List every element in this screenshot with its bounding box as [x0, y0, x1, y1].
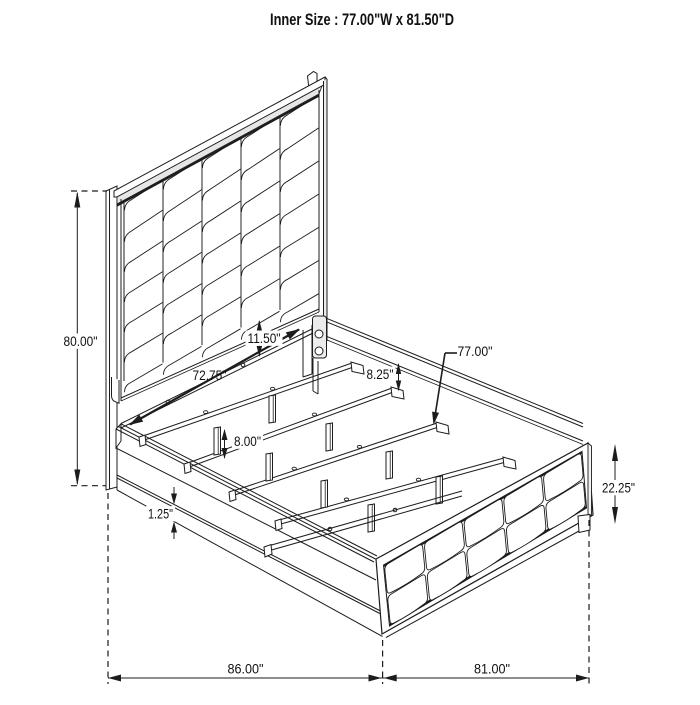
svg-text:8.25": 8.25" [367, 367, 394, 382]
svg-text:81.00": 81.00" [474, 662, 510, 677]
svg-text:22.25": 22.25" [602, 481, 635, 496]
svg-text:11.50": 11.50" [248, 331, 281, 346]
svg-text:86.00": 86.00" [228, 662, 264, 677]
svg-text:80.00": 80.00" [64, 334, 98, 349]
svg-text:Inner Size : 77.00"W x 81.50"D: Inner Size : 77.00"W x 81.50"D [270, 11, 454, 29]
svg-text:72.75": 72.75" [193, 368, 227, 383]
svg-text:1.25": 1.25" [148, 507, 173, 522]
svg-text:8.00": 8.00" [234, 434, 261, 449]
svg-text:77.00": 77.00" [458, 344, 493, 359]
